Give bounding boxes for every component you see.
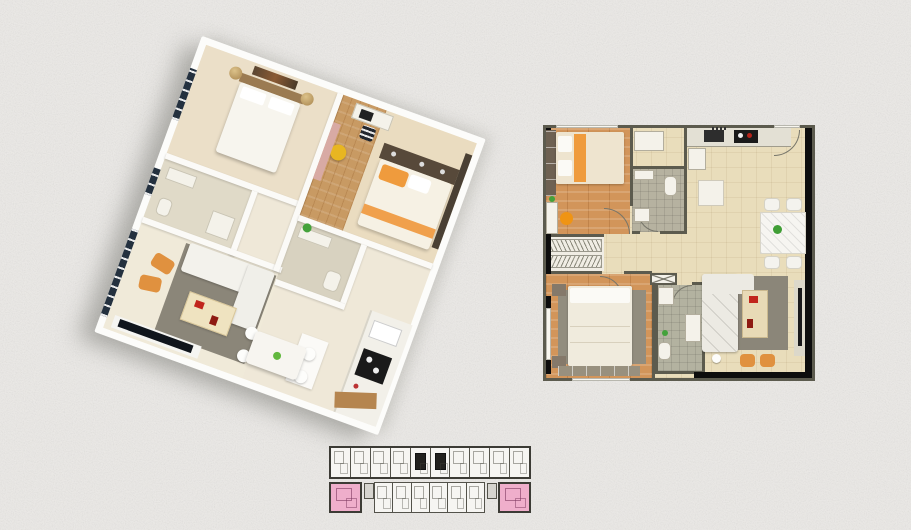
floorplan-collage xyxy=(0,0,911,530)
dining-chair xyxy=(764,198,780,211)
floor-lamp xyxy=(712,354,721,363)
fridge xyxy=(688,148,706,170)
wall xyxy=(546,271,602,274)
keyplan-unit xyxy=(429,482,448,513)
keyplan-core xyxy=(431,448,451,477)
kitchen-wood-bar xyxy=(334,392,377,409)
window xyxy=(556,125,618,128)
shelf xyxy=(634,170,654,180)
window xyxy=(572,378,630,381)
keyplan-unit xyxy=(392,482,411,513)
keyplan-row-top xyxy=(329,446,531,479)
orange-desk-chair xyxy=(560,212,573,225)
plan-2d xyxy=(543,125,815,381)
toilet xyxy=(664,176,677,196)
nightstand xyxy=(552,284,566,296)
keyplan-unit xyxy=(331,448,351,477)
keyplan-unit xyxy=(447,482,466,513)
window xyxy=(546,308,551,360)
keyplan-unit xyxy=(470,448,490,477)
keyplan-unit xyxy=(351,448,371,477)
wall xyxy=(624,271,652,274)
loggia-hatch xyxy=(548,239,602,252)
keyplan-unit xyxy=(371,448,391,477)
plant xyxy=(549,196,555,202)
wardrobe xyxy=(546,130,556,196)
keyplan-row-bottom xyxy=(329,482,531,513)
edge-shadow-left xyxy=(546,228,551,274)
wall xyxy=(660,231,687,234)
dining-table xyxy=(760,212,806,254)
wardrobe xyxy=(558,366,640,376)
vanity xyxy=(685,314,701,342)
keyplan-unit xyxy=(466,482,485,513)
bed-1 xyxy=(556,132,624,184)
wall xyxy=(546,234,604,237)
edge-shadow-bottom xyxy=(694,372,805,378)
kitchen-counter xyxy=(687,128,791,147)
orange-stool xyxy=(760,354,775,367)
storage-cabinet xyxy=(634,131,664,151)
wall xyxy=(632,166,687,169)
kitchen-island xyxy=(698,180,724,206)
keyplan-unit xyxy=(391,448,411,477)
dining-chair xyxy=(786,198,802,211)
orange-stool xyxy=(740,354,755,367)
keyplan-unit xyxy=(510,448,529,477)
toilet xyxy=(658,342,671,360)
loggia-hatch xyxy=(548,255,602,268)
keyplan-unit xyxy=(411,482,430,513)
shaft-x-box xyxy=(650,273,677,285)
bed-2 xyxy=(568,286,632,366)
keyplan-core xyxy=(411,448,431,477)
plant xyxy=(662,330,668,336)
keyplan-unit xyxy=(490,448,510,477)
keyplan xyxy=(329,446,531,516)
keyplan-stub xyxy=(485,482,498,513)
desk xyxy=(546,202,558,234)
washbasin xyxy=(634,208,650,222)
coffee-table xyxy=(742,290,768,338)
tv-panel xyxy=(798,288,802,346)
keyplan-highlighted-unit xyxy=(329,482,362,513)
edge-shadow-right xyxy=(805,128,812,378)
dining-chair xyxy=(786,256,802,269)
wall xyxy=(632,231,640,234)
keyplan-unit xyxy=(450,448,470,477)
keyplan-highlighted-unit xyxy=(498,482,531,513)
plan-3d xyxy=(94,36,486,435)
washer xyxy=(658,287,674,305)
keyplan-unit xyxy=(374,482,393,513)
dining-chair xyxy=(764,256,780,269)
